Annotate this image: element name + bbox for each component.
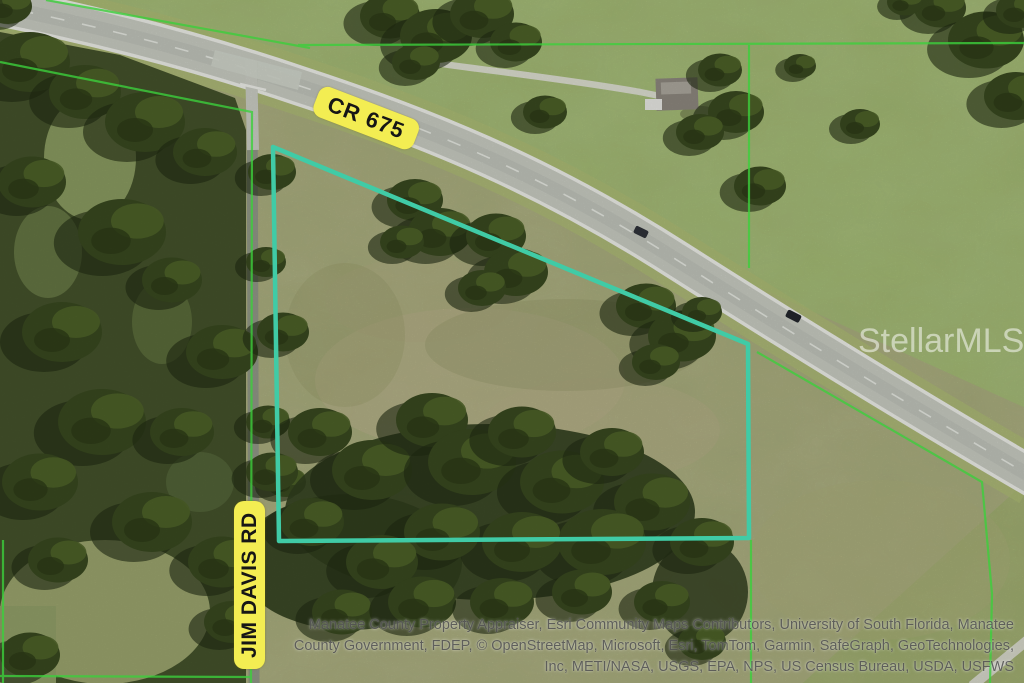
attribution-line-2: County Government, FDEP, © OpenStreetMap… — [294, 636, 1014, 657]
stellar-mls-watermark: StellarMLS — [858, 322, 1024, 361]
map-attribution: Manatee County Property Appraiser, Esri … — [294, 615, 1014, 678]
road-label-jim-davis-rd: JIM DAVIS RD — [234, 501, 265, 669]
aerial-map-photo[interactable]: CR 675 JIM DAVIS RD StellarMLS Manatee C… — [0, 0, 1024, 683]
attribution-line-3: Inc, METI/NASA, USGS, EPA, NPS, US Censu… — [294, 657, 1014, 678]
attribution-line-1: Manatee County Property Appraiser, Esri … — [294, 615, 1014, 636]
